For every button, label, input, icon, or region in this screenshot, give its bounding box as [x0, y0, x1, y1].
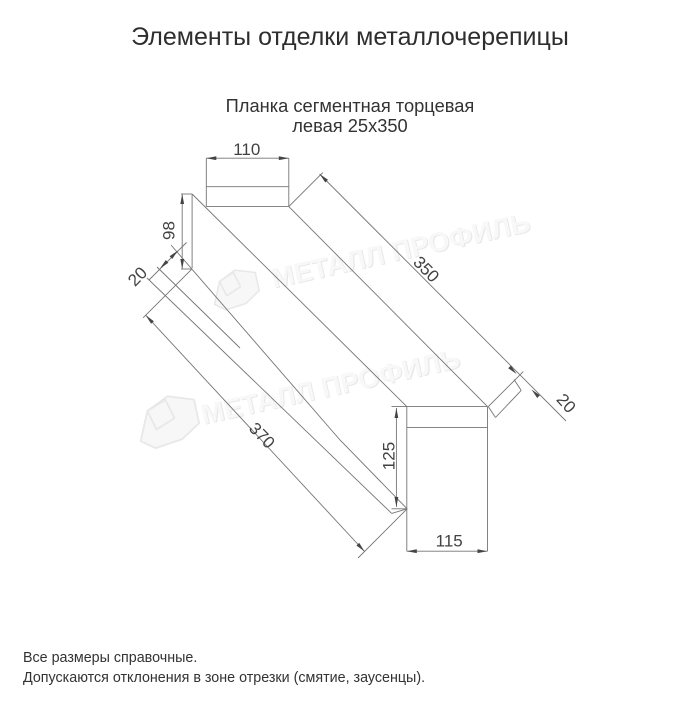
svg-text:Планка сегментная торцевая: Планка сегментная торцевая [226, 95, 475, 116]
svg-text:левая 25х350: левая 25х350 [292, 115, 407, 136]
svg-text:98: 98 [160, 221, 179, 240]
svg-text:110: 110 [233, 140, 260, 159]
svg-text:Допускаются отклонения в зоне: Допускаются отклонения в зоне отрезки (с… [23, 670, 425, 686]
svg-text:Все размеры справочные.: Все размеры справочные. [23, 650, 197, 666]
svg-text:Элементы отделки металлочерепи: Элементы отделки металлочерепицы [131, 23, 569, 51]
svg-text:115: 115 [436, 532, 463, 551]
svg-text:125: 125 [380, 442, 399, 470]
